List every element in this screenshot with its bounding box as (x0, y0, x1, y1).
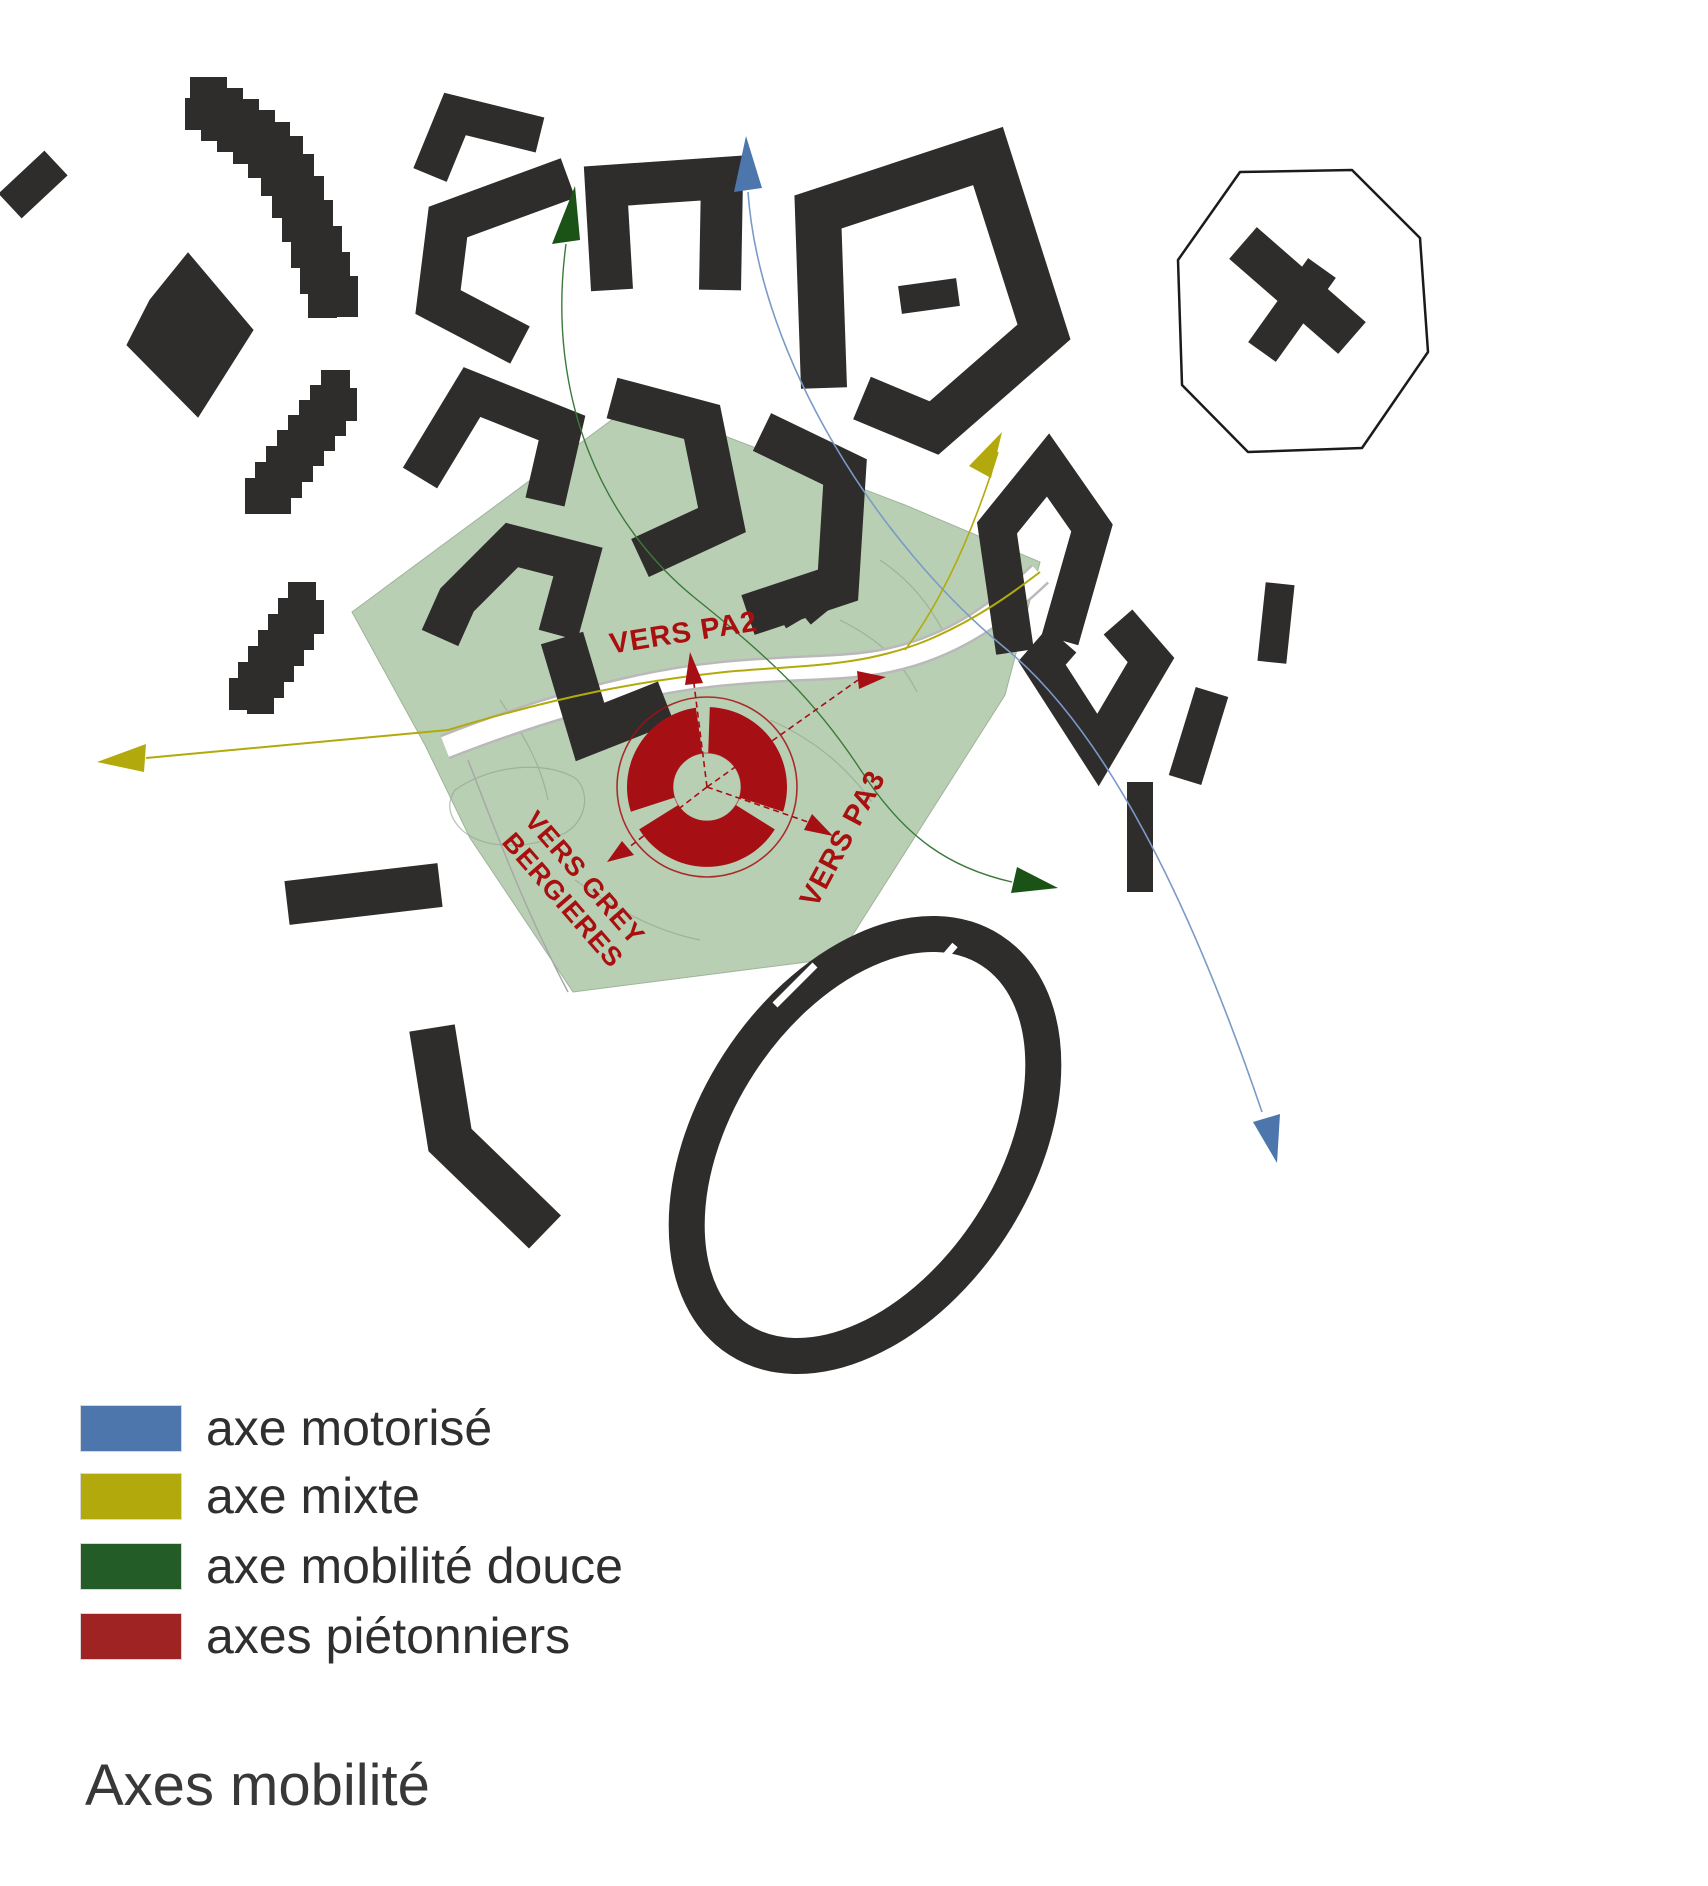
mobility-axes-map: VERS PA2 VERS PA3 VERS GREY BERGIERES (0, 0, 1708, 1886)
legend-swatch-soft-mobility (80, 1543, 182, 1590)
legend-item-mixed: axe mixte (80, 1473, 420, 1519)
site-plan-canvas: VERS PA2 VERS PA3 VERS GREY BERGIERES ax… (0, 0, 1708, 1886)
arrow-soft-mobility-east (1011, 867, 1058, 893)
legend-item-soft-mobility: axe mobilité douce (80, 1543, 623, 1589)
legend-label-soft-mobility: axe mobilité douce (206, 1537, 623, 1595)
legend-swatch-pedestrian (80, 1613, 182, 1660)
arrow-motorized-south (1253, 1114, 1280, 1163)
building-bar-right-2 (1185, 692, 1212, 780)
building-hook-d-inner (900, 292, 958, 300)
building-hook-a (430, 114, 540, 175)
building-jagged-band-south (247, 600, 316, 710)
legend-item-pedestrian: axes piétonniers (80, 1613, 570, 1659)
building-diamond-chain-upper (997, 465, 1092, 652)
legend-label-motorized: axe motorisé (206, 1399, 492, 1457)
legend-item-motorized: axe motorisé (80, 1405, 492, 1451)
building-boomerang (432, 1028, 545, 1232)
building-diamond-block (127, 253, 253, 417)
page-title: Axes mobilité (85, 1752, 430, 1819)
arrow-mixed-west (97, 744, 146, 772)
octagon-parcel (1178, 170, 1428, 452)
building-diamond-chain-lower (1042, 622, 1151, 750)
legend-swatch-mixed (80, 1473, 182, 1520)
building-bar-southwest (287, 885, 440, 903)
building-hook-c (606, 178, 722, 290)
building-jagged-band-middle (263, 388, 350, 514)
legend-label-mixed: axe mixte (206, 1467, 420, 1525)
legend-swatch-motorized (80, 1405, 182, 1452)
building-chevron (420, 392, 562, 502)
legend-label-pedestrian: axes piétonniers (206, 1607, 570, 1665)
building-wedge-left-edge (10, 163, 56, 206)
building-hook-b (438, 178, 568, 345)
building-bar-right-1 (1258, 583, 1294, 663)
